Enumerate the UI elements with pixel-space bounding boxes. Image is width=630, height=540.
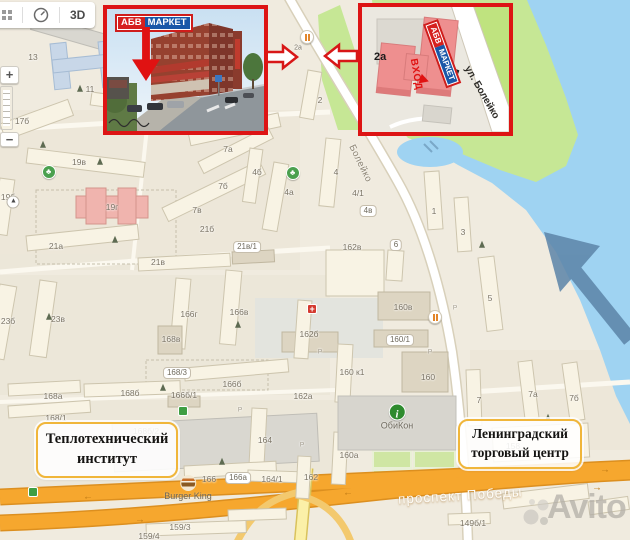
zoom-in-button[interactable]: +: [0, 66, 19, 84]
view-3d-button[interactable]: 3D: [70, 2, 85, 28]
map-zoom-inset: 2а АБВ МАРКЕТ ВХОД ул. Болейко: [358, 3, 513, 136]
transit-poi-icon[interactable]: [178, 406, 188, 416]
burger-king-poi[interactable]: Burger King: [164, 475, 212, 501]
trade-center-line1: Ленинградский: [472, 425, 568, 444]
trade-center-label-box: Ленинградский торговый центр: [458, 419, 582, 469]
building-2a-label: 2а: [374, 51, 386, 63]
burger-king-label: Burger King: [164, 491, 212, 501]
institute-line1: Теплотехнический: [46, 430, 169, 450]
layers-button[interactable]: [0, 2, 12, 28]
logo-abv: АБВ: [118, 17, 145, 29]
logo-market: МАРКЕТ: [435, 45, 458, 85]
street-label-ul-boleyko: ул. Болейко: [462, 64, 501, 121]
toolbar-divider: [22, 7, 23, 23]
compass-icon: [33, 7, 49, 23]
info-icon: [389, 404, 406, 421]
zoom-out-button[interactable]: −: [0, 132, 19, 147]
photo-inset: АБВ МАРКЕТ: [103, 5, 268, 135]
zoom-control: + −: [0, 66, 20, 147]
obikon-poi[interactable]: ОбиКон: [381, 404, 413, 431]
medical-poi-icon[interactable]: [307, 304, 317, 314]
institute-label-box: Теплотехнический институт: [36, 422, 178, 478]
burger-icon: [180, 475, 196, 491]
playground-poi-icon[interactable]: [42, 165, 56, 179]
logo-market: МАРКЕТ: [145, 17, 190, 29]
map-toolbar: 3D: [0, 2, 95, 28]
transit-poi-icon[interactable]: [28, 487, 38, 497]
toolbar-divider: [59, 7, 60, 23]
listing-map-image: 1131117б19в19б19г21а21б21в21в/17а7б7в4б4…: [0, 0, 630, 540]
restaurant-poi-icon[interactable]: [428, 310, 442, 324]
institute-line2: институт: [77, 450, 137, 470]
grid-icon: [0, 10, 12, 20]
entrance-arrow-down: [132, 27, 160, 81]
obikon-label: ОбиКон: [381, 421, 413, 431]
compass-button[interactable]: [33, 2, 49, 28]
trade-center-line2: торговый центр: [471, 444, 569, 463]
zoom-slider[interactable]: [0, 86, 13, 130]
compass-poi-icon[interactable]: [7, 196, 20, 209]
inset-connection-arrows: [262, 42, 360, 72]
abv-market-logo: АБВ МАРКЕТ: [115, 14, 193, 32]
playground-poi-icon[interactable]: [286, 166, 300, 180]
